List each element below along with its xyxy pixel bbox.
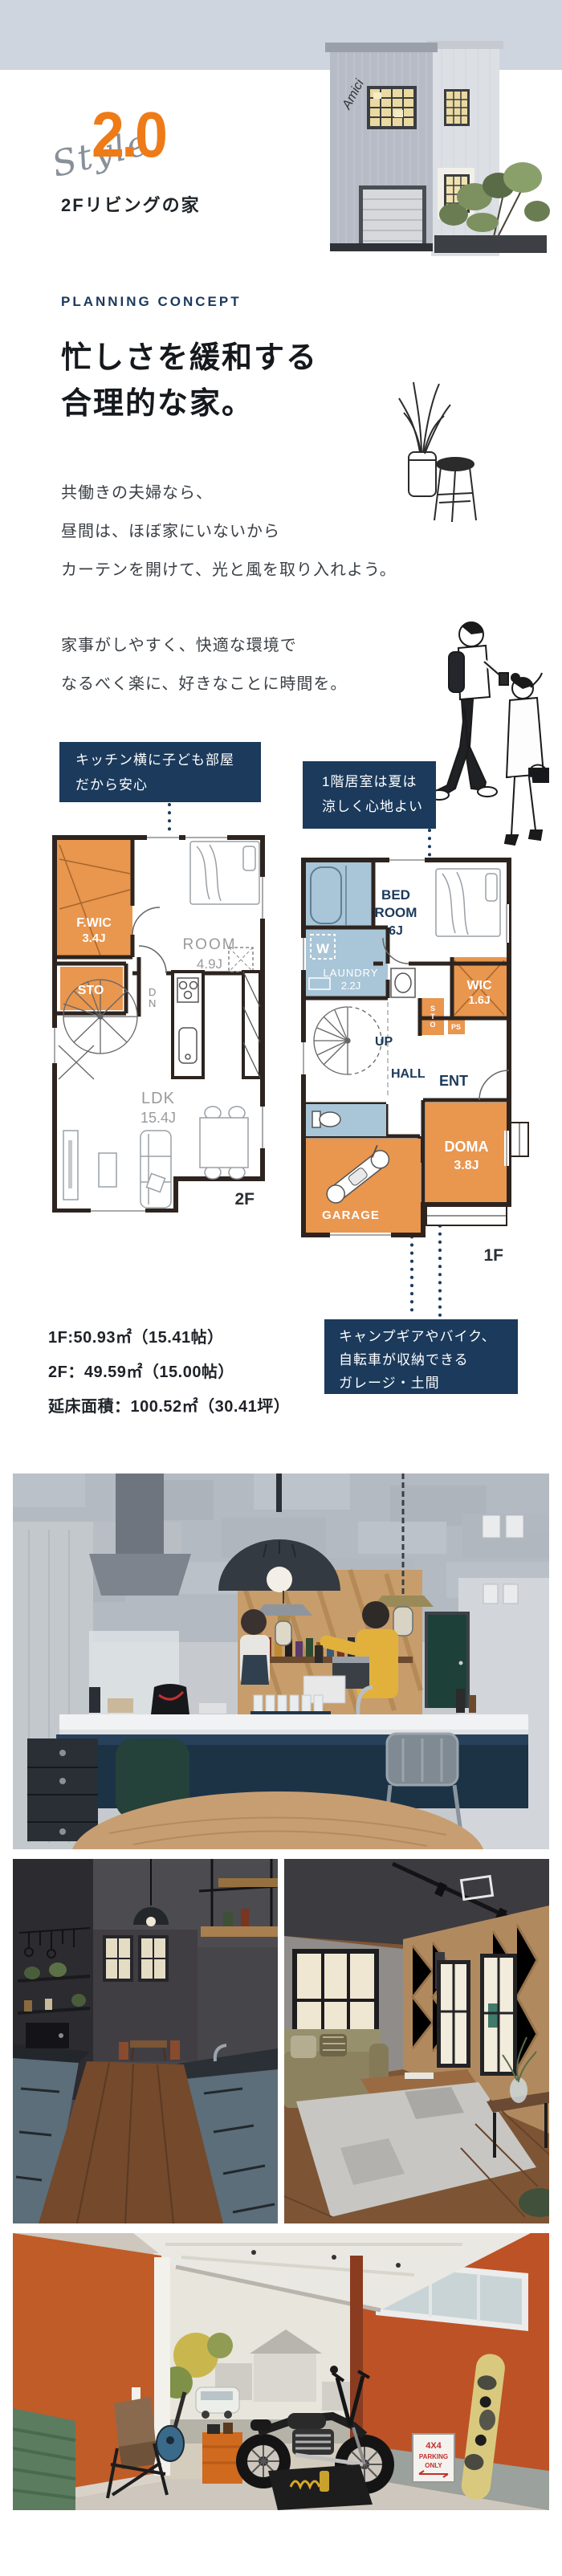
style-number: 2.0 — [92, 98, 165, 172]
toilet-icon — [312, 1111, 340, 1127]
person-left — [240, 1609, 270, 1685]
photo-kitchen-bar — [13, 1473, 549, 1849]
bed-icon-2f — [190, 842, 259, 904]
sto-label: STO — [78, 984, 104, 997]
up-label: UP — [375, 1035, 393, 1049]
garage-door — [359, 185, 426, 250]
concept-heading: 忙しさを緩和する 合理的な家。 — [61, 336, 318, 427]
pantry-shelf-2f — [243, 972, 260, 1078]
dining-set-2f — [200, 1107, 248, 1179]
concept-paragraph-1: 共働きの夫婦なら、 昼間は、ほぼ家にいないから カーテンを開けて、光と風を取り入… — [61, 474, 397, 589]
callout-first-floor-line1: 1階居室は夏は — [322, 769, 436, 794]
callout-kids-room-line1: キッチン横に子ども部屋 — [75, 748, 261, 772]
area-total: 延床面積：100.52㎡（30.41坪） — [48, 1390, 290, 1425]
garage-label: GARAGE — [322, 1209, 380, 1222]
dn-label-d: D — [149, 986, 156, 998]
drawer-cabinet — [27, 1738, 98, 1841]
callout-kids-room: キッチン横に子ども部屋 だから安心 — [59, 742, 261, 802]
counter-top — [59, 1714, 528, 1730]
floor-mat — [268, 2464, 373, 2510]
callout-garage: キャンプギアやバイク、 自転車が収納できる ガレージ・土間 — [324, 1319, 518, 1394]
floorplan-2f: F.WIC 3.4J STO ROOM 4.9J D N LDK 15.4J 2… — [52, 835, 265, 1213]
ldk-label: LDK — [141, 1090, 175, 1107]
hall-label: HALL — [391, 1067, 426, 1081]
planning-concept-label: PLANNING CONCEPT — [61, 294, 242, 310]
green-bench — [13, 2408, 75, 2510]
page-title: 2Fリビングの家 — [61, 191, 201, 217]
house-render-illustration: Amici — [325, 36, 558, 265]
parking-sign-line3: ONLY — [425, 2462, 442, 2469]
range-hood — [89, 1554, 191, 1596]
dn-label-n: N — [149, 997, 156, 1009]
sto-1f-o: O — [430, 1021, 435, 1029]
house-front-window — [367, 86, 417, 129]
floor-area-stats: 1F:50.93㎡（15.41帖） 2F：49.59㎡（15.00帖） 延床面積… — [48, 1321, 290, 1425]
page: Amici — [0, 0, 562, 2576]
sto-1f-t: T — [430, 1013, 435, 1021]
range-hood-chimney — [116, 1473, 164, 1554]
bedroom-label-1: BED — [381, 887, 410, 903]
room-size-label: 4.9J — [197, 956, 222, 972]
room-label: ROOM — [182, 936, 236, 953]
callout-garage-line2: 自転車が収納できる — [339, 1348, 518, 1372]
callout-first-floor: 1階居室は夏は 涼しく心地よい — [303, 761, 436, 829]
wic-label: WIC — [466, 979, 492, 992]
right-wall — [458, 1578, 549, 1849]
plant-stool-illustration — [391, 376, 479, 524]
parking-sign-line2: PARKING — [419, 2453, 448, 2460]
bed-icon-1f — [436, 869, 500, 936]
laundry-label: LAUNDRY — [324, 967, 379, 979]
parking-sign-line1: 4X4 — [426, 2441, 442, 2451]
callout-garage-line3: ガレージ・土間 — [339, 1372, 518, 1395]
washer-label: W — [316, 941, 330, 956]
floor-label-1f: 1F — [483, 1246, 503, 1265]
sto-1f-s: S — [430, 1005, 435, 1013]
laundry-size-label: 2.2J — [341, 980, 361, 992]
paragraph2-line2: なるべく楽に、好きなことに時間を。 — [61, 665, 347, 703]
doma-label: DOMA — [445, 1139, 489, 1155]
concept-paragraph-2: 家事がしやすく、快適な環境で なるべく楽に、好きなことに時間を。 — [61, 626, 347, 703]
ent-label: ENT — [439, 1073, 468, 1089]
bedroom-label-2: ROOM — [375, 905, 417, 920]
fwic-label: F.WIC — [76, 916, 112, 930]
callout-kids-room-line2: だから安心 — [75, 772, 261, 797]
concept-heading-line2: 合理的な家。 — [61, 381, 318, 427]
photo-living-room — [284, 1859, 549, 2223]
paragraph1-line1: 共働きの夫婦なら、 — [61, 474, 397, 512]
doma-size-label: 3.8J — [454, 1159, 479, 1172]
paragraph1-line2: 昼間は、ほぼ家にいないから — [61, 512, 397, 551]
bedroom-size-label: 6J — [389, 924, 403, 938]
washbasin-icon — [391, 968, 415, 997]
wall-outlet — [132, 2387, 140, 2401]
parking-sign: 4X4 PARKING ONLY — [413, 2434, 454, 2482]
area-2f: 2F：49.59㎡（15.00帖） — [48, 1355, 290, 1390]
fwic-size-label: 3.4J — [82, 931, 105, 945]
photo-garage: 4X4 PARKING ONLY — [13, 2233, 549, 2510]
paragraph1-line3: カーテンを開けて、光と風を取り入れよう。 — [61, 551, 397, 589]
kitchen-counter-2f — [173, 972, 203, 1078]
floor-label-2f: 2F — [234, 1190, 255, 1209]
concept-heading-line1: 忙しさを緩和する — [61, 336, 318, 381]
photo-galley-kitchen — [13, 1859, 278, 2223]
wic-size-label: 1.6J — [468, 993, 490, 1006]
floorplan-1f: BED ROOM 6J W LAUNDRY 2.2J WIC 1.6J S T … — [301, 858, 534, 1267]
area-1f: 1F:50.93㎡（15.41帖） — [48, 1321, 290, 1355]
couple-illustration — [420, 604, 562, 865]
sofa-2f — [140, 1131, 171, 1208]
callout-garage-line1: キャンプギアやバイク、 — [339, 1325, 518, 1348]
callout-first-floor-line2: 涼しく心地よい — [322, 794, 436, 819]
ldk-size-label: 15.4J — [140, 1110, 176, 1126]
ps-label: PS — [451, 1023, 461, 1031]
paragraph2-line1: 家事がしやすく、快適な環境で — [61, 626, 347, 665]
house-rear-window-upper — [444, 89, 470, 126]
